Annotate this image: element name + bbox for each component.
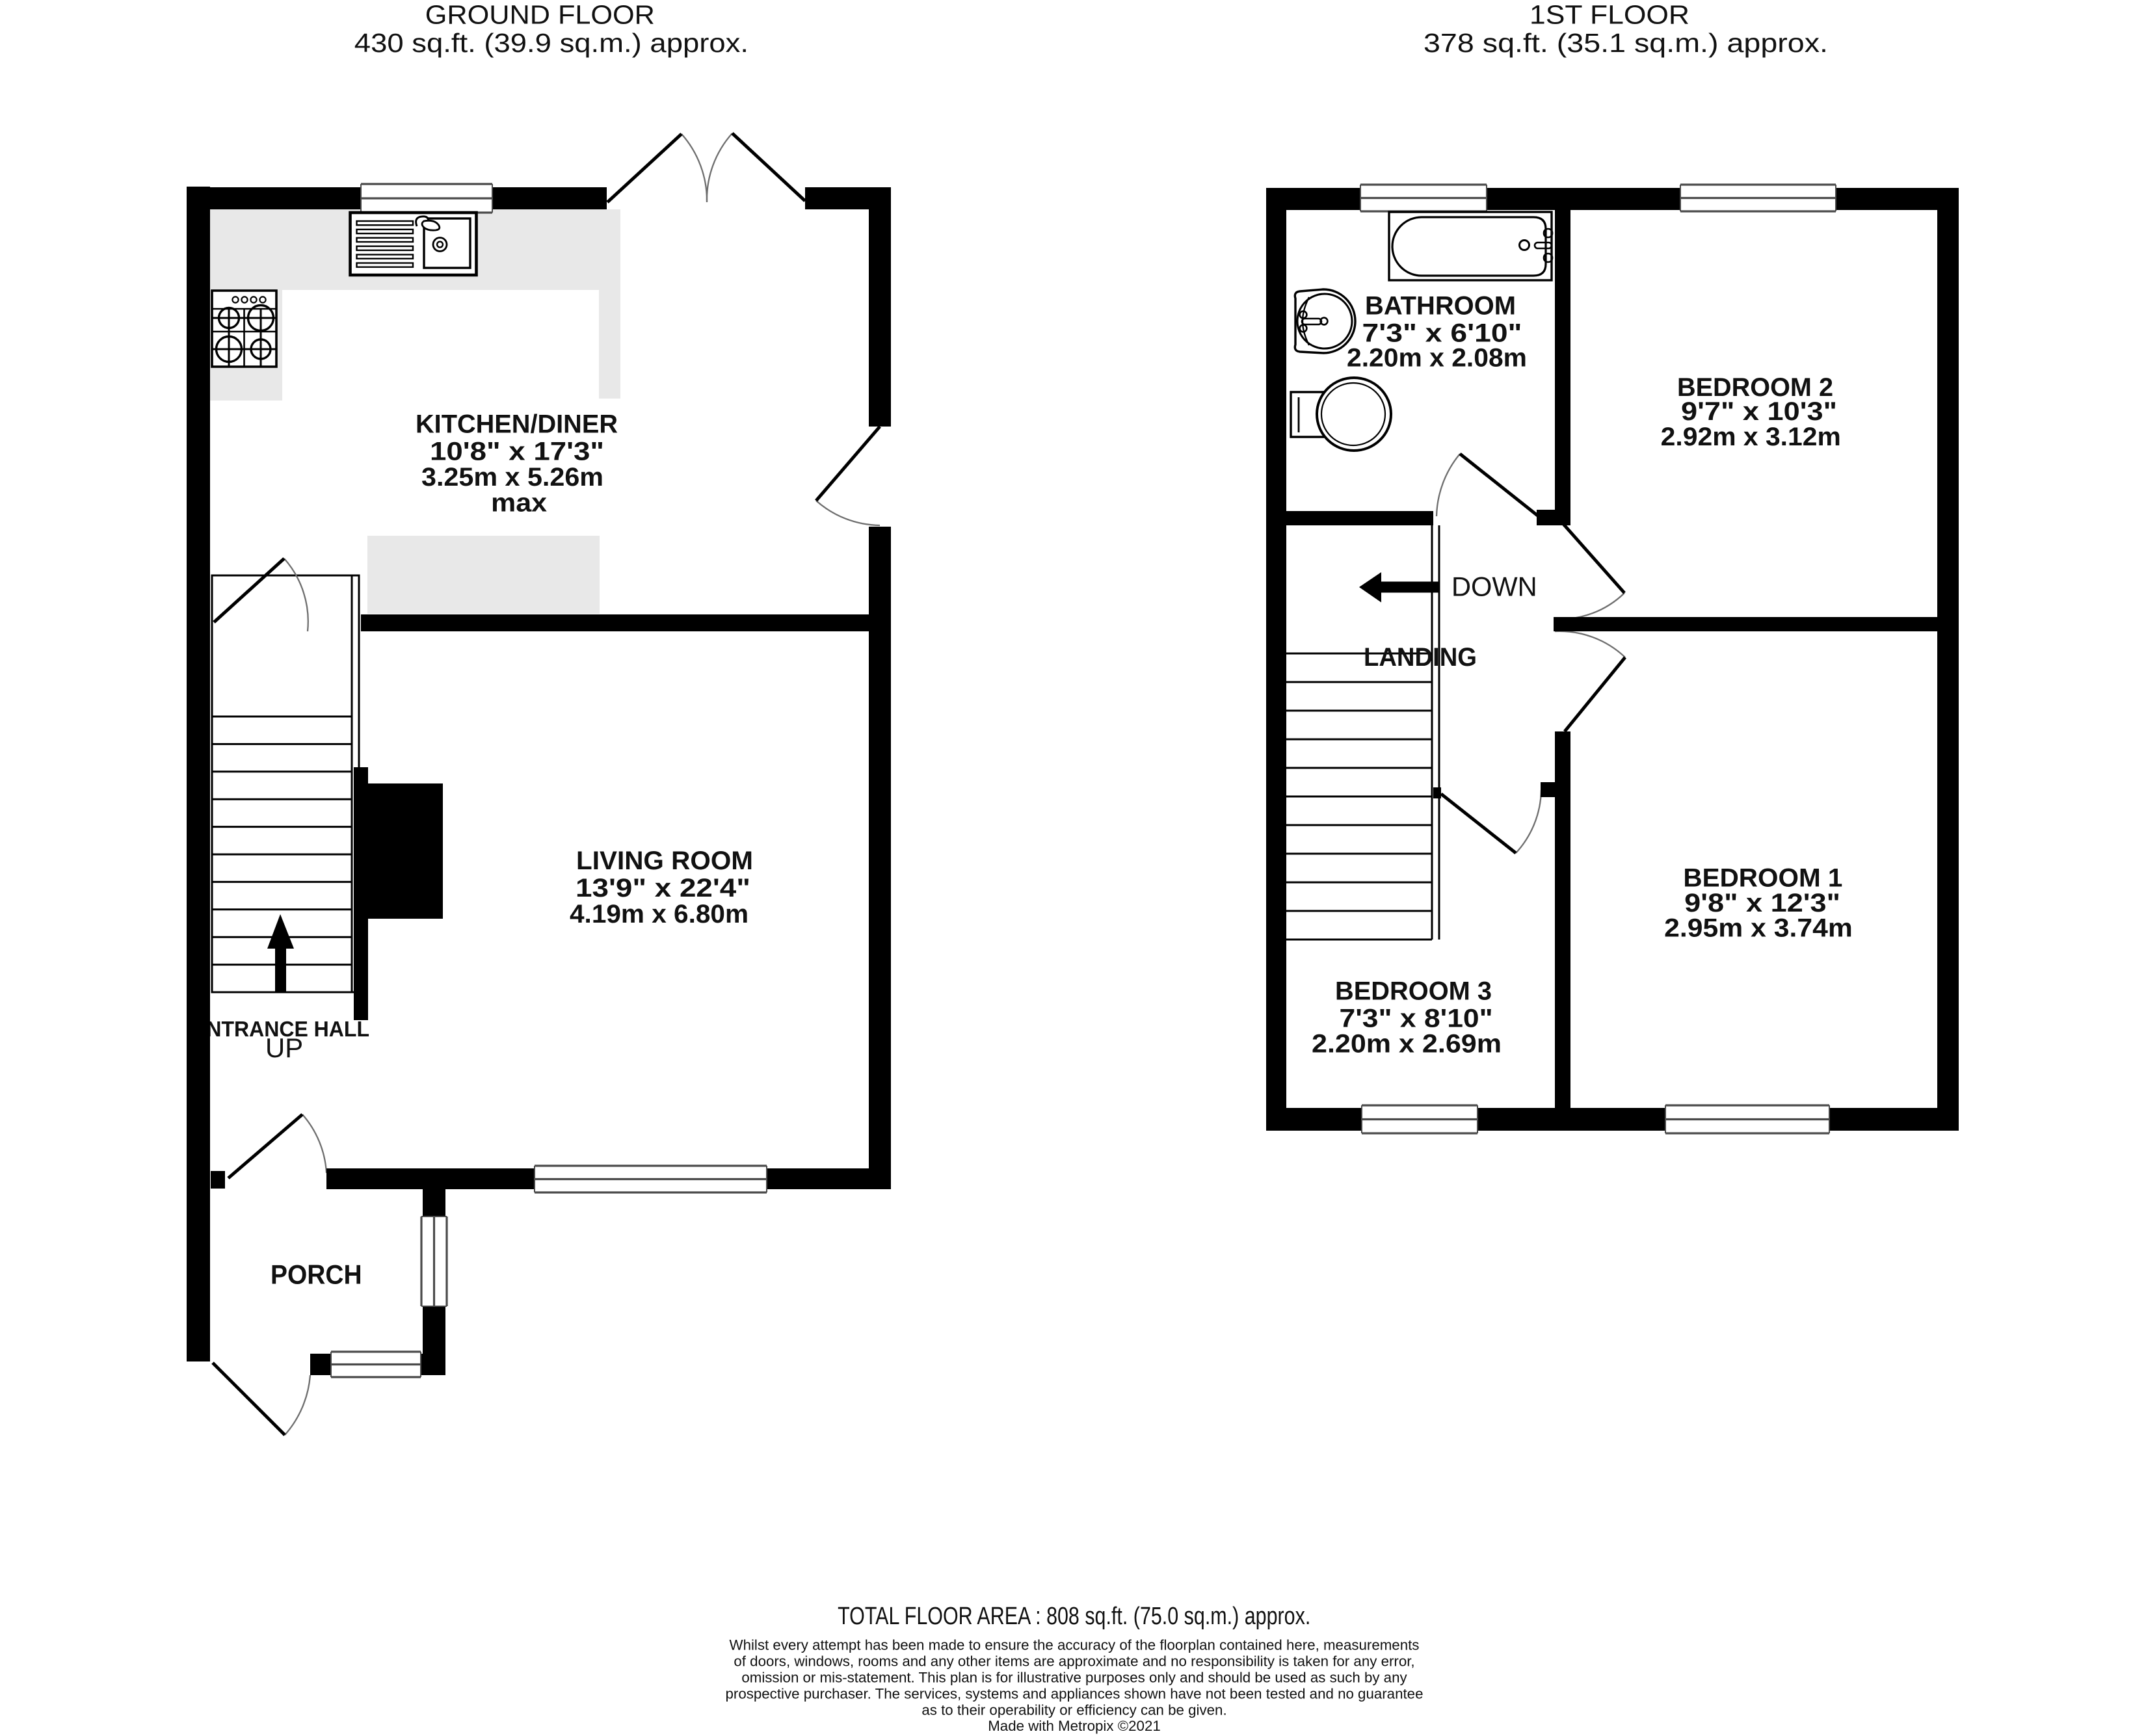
svg-text:2.20m x 2.08m: 2.20m x 2.08m: [1347, 344, 1527, 373]
svg-text:UP: UP: [265, 1032, 303, 1063]
svg-text:TOTAL FLOOR AREA : 808 sq.ft.: TOTAL FLOOR AREA : 808 sq.ft. (75.0 sq.m…: [838, 1603, 1310, 1630]
svg-text:KITCHEN/DINER: KITCHEN/DINER: [416, 410, 618, 438]
svg-text:2.95m x 3.74m: 2.95m x 3.74m: [1664, 914, 1853, 943]
svg-text:prospective purchaser. The ser: prospective purchaser. The services, sys…: [726, 1685, 1424, 1702]
svg-text:LANDING: LANDING: [1364, 643, 1477, 672]
svg-text:378 sq.ft. (35.1 sq.m.) approx: 378 sq.ft. (35.1 sq.m.) approx.: [1424, 28, 1828, 58]
svg-text:LIVING ROOM: LIVING ROOM: [576, 847, 753, 875]
svg-text:2.92m x 3.12m: 2.92m x 3.12m: [1661, 423, 1841, 451]
svg-text:max: max: [491, 489, 547, 518]
svg-text:7'3" x 8'10": 7'3" x 8'10": [1340, 1005, 1493, 1033]
svg-text:PORCH: PORCH: [271, 1259, 362, 1289]
svg-text:of doors, windows, rooms and a: of doors, windows, rooms and any other i…: [734, 1653, 1414, 1670]
svg-text:1ST FLOOR: 1ST FLOOR: [1530, 0, 1689, 30]
svg-text:2.20m x 2.69m: 2.20m x 2.69m: [1312, 1030, 1502, 1059]
svg-text:BEDROOM 3: BEDROOM 3: [1335, 977, 1492, 1006]
svg-text:DOWN: DOWN: [1451, 571, 1537, 601]
svg-text:BATHROOM: BATHROOM: [1365, 292, 1516, 321]
svg-text:9'7" x 10'3": 9'7" x 10'3": [1681, 397, 1837, 426]
svg-text:Whilst every attempt has been: Whilst every attempt has been made to en…: [730, 1637, 1420, 1653]
svg-text:omission or mis-statement. Thi: omission or mis-statement. This plan is …: [741, 1670, 1407, 1686]
svg-text:10'8" x 17'3": 10'8" x 17'3": [430, 437, 604, 466]
svg-text:Made with Metropix ©2021: Made with Metropix ©2021: [988, 1718, 1161, 1734]
svg-text:4.19m x 6.80m: 4.19m x 6.80m: [570, 900, 748, 928]
svg-text:BEDROOM 1: BEDROOM 1: [1683, 864, 1842, 893]
svg-text:GROUND FLOOR: GROUND FLOOR: [425, 0, 655, 30]
svg-text:3.25m x 5.26m: 3.25m x 5.26m: [421, 463, 603, 492]
svg-text:9'8" x 12'3": 9'8" x 12'3": [1684, 889, 1840, 917]
svg-text:13'9" x 22'4": 13'9" x 22'4": [576, 874, 750, 902]
svg-text:as to their operability or eff: as to their operability or efficiency ca…: [921, 1702, 1226, 1718]
svg-text:430 sq.ft. (39.9 sq.m.) approx: 430 sq.ft. (39.9 sq.m.) approx.: [354, 28, 748, 58]
